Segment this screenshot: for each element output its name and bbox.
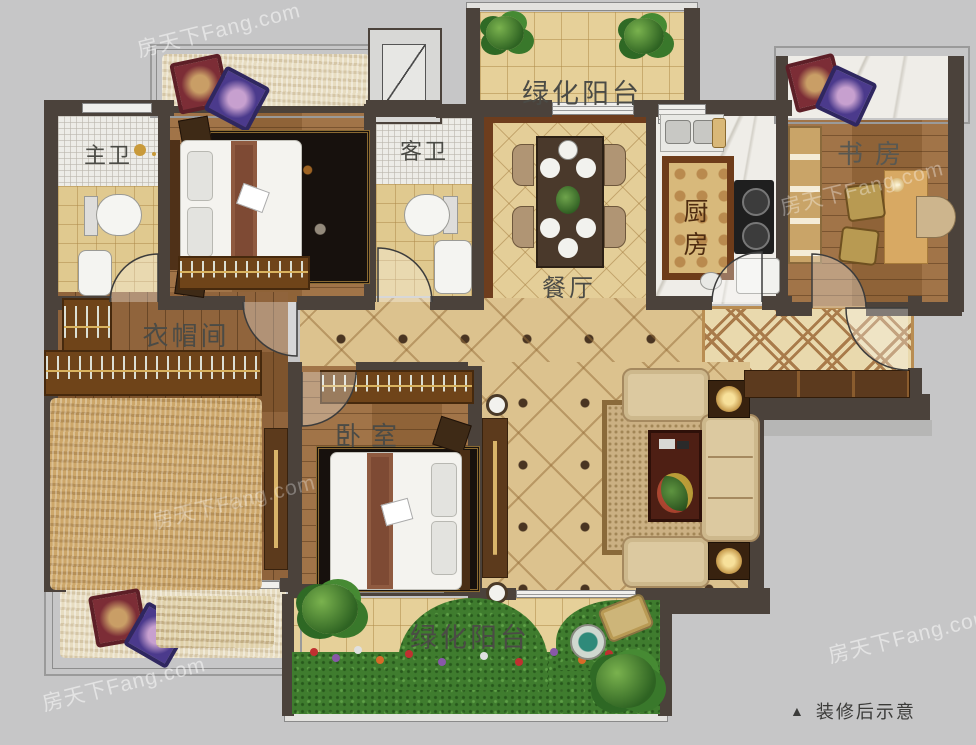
- exterior-step: [746, 420, 932, 436]
- wall-corridor-n3: [297, 296, 375, 310]
- sink-basin-1: [665, 120, 691, 144]
- label-balcony-bottom: 绿化阳台: [330, 616, 610, 655]
- label-master-bath: 主卫: [62, 138, 154, 170]
- wall-corridor-n4: [430, 296, 484, 310]
- living-balcony-slider: [516, 590, 636, 598]
- stove-burner-1: [742, 188, 770, 216]
- study-guest-chair-2: [838, 226, 880, 266]
- dining-plates: [558, 140, 578, 160]
- plant-top-balcony-right: [624, 18, 664, 54]
- dining-chair-r1: [604, 144, 626, 186]
- wall-guestbath-dining: [472, 104, 484, 310]
- kitchen-appliance: [736, 258, 780, 294]
- cutting-board: [712, 118, 726, 148]
- label-kitchen: 厨房: [676, 186, 712, 276]
- dining-chair-l1: [512, 144, 534, 186]
- cloakroom-rack-long: [44, 350, 262, 396]
- caption-text: 装修后示意: [816, 698, 916, 724]
- lamp-table-bottom: [708, 542, 750, 580]
- speaker-top: [486, 394, 508, 416]
- flower-bed: [310, 648, 318, 656]
- dining-chair-l2: [512, 206, 534, 248]
- bed-mid-pillow-2: [431, 521, 457, 575]
- wall-entry-jamb-top: [908, 296, 922, 310]
- loveseat-bottom: [622, 536, 710, 588]
- plant-bottom-right: [596, 654, 656, 708]
- entrance-shoe-cabinet: [744, 370, 910, 398]
- study-desk-chair: [916, 196, 956, 238]
- stove-cooktop: [734, 180, 774, 254]
- wall-corridor-n2: [158, 296, 245, 310]
- wall-right-study: [948, 56, 964, 312]
- bed-pillow-1: [187, 151, 213, 201]
- stove-burner-2: [742, 222, 770, 250]
- wall-study-s1: [776, 302, 812, 316]
- wall-entry-jamb-bottom: [908, 368, 922, 396]
- wall-balcony-top-left: [466, 8, 480, 116]
- balcony-top-rail: [466, 2, 698, 11]
- sink-guest: [434, 240, 472, 294]
- shaft-diagonal-mark: [382, 44, 426, 108]
- bed-pillow-2: [187, 207, 213, 257]
- toilet-bowl-guest: [404, 194, 450, 236]
- bed-topleft: [180, 140, 302, 272]
- floor-plan-canvas: 绿化阳台 主卫 客卫 餐厅 厨房 书房 衣帽间 卧室 绿化阳台 房天下Fang.…: [0, 0, 976, 745]
- toilet-bowl-master: [96, 194, 142, 236]
- coffee-table-flowers: [657, 473, 693, 513]
- wardrobe-topleft: [178, 256, 310, 290]
- loveseat-top: [622, 368, 710, 422]
- wall-under-shaft: [366, 100, 440, 117]
- plant-top-balcony-left: [486, 16, 524, 50]
- wall-balcony-bottom-right: [658, 610, 672, 716]
- sofa-main: [700, 414, 760, 542]
- master-bay-fur-throw: [156, 596, 274, 648]
- wardrobe-bedroom-mid: [320, 370, 474, 404]
- lamp-bottom: [716, 548, 742, 574]
- label-cloakroom: 衣帽间: [106, 316, 266, 353]
- wall-balcony-bottom-right-chunk: [660, 588, 770, 614]
- bed-headboard-topleft: [170, 140, 180, 270]
- lamp-top: [716, 386, 742, 412]
- dining-chair-r2: [604, 206, 626, 248]
- coffee-table: [648, 430, 702, 522]
- dining-centerpiece-plant: [556, 186, 580, 214]
- bed-mid: [330, 452, 462, 590]
- wall-kitchen-s1: [646, 296, 712, 310]
- watermark-bottom-right: 房天下Fang.com: [825, 600, 976, 670]
- sink-master: [78, 250, 112, 296]
- caption: ▲ 装修后示意: [790, 698, 960, 724]
- coffee-table-remote: [659, 439, 675, 449]
- masterbath-window: [82, 103, 152, 113]
- label-guest-bath: 客卫: [376, 134, 472, 166]
- coffee-table-item: [677, 441, 689, 449]
- living-tv-cabinet: [482, 418, 508, 578]
- bed-mid-pillow-1: [431, 463, 457, 517]
- label-balcony-top: 绿化阳台: [480, 72, 684, 111]
- caption-triangle-icon: ▲: [790, 703, 804, 719]
- balcony-bottom-rail: [284, 713, 668, 722]
- label-dining: 餐厅: [484, 268, 654, 303]
- label-bedroom-mid: 卧室: [316, 416, 426, 453]
- wall-masterbath-bedroom: [158, 104, 170, 302]
